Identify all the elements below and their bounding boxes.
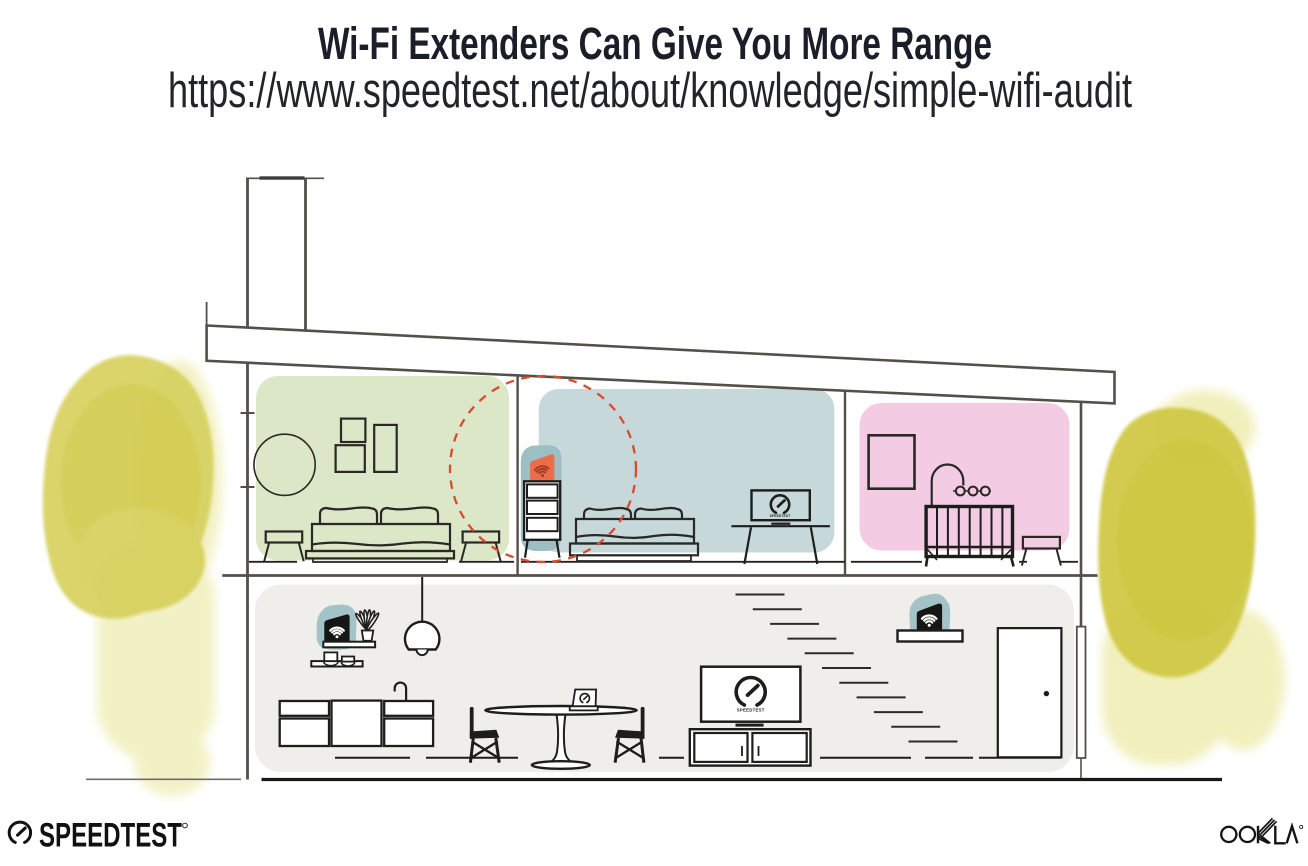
svg-text:SPEEDTEST: SPEEDTEST	[737, 708, 765, 713]
svg-text:Wi-Fi Extenders Can Give You M: Wi-Fi Extenders Can Give You More Range	[318, 18, 992, 69]
svg-text:https://www.speedtest.net/abou: https://www.speedtest.net/about/knowledg…	[168, 64, 1132, 118]
svg-text:SPEEDTEST: SPEEDTEST	[39, 817, 182, 855]
svg-text:SPEEDTEST: SPEEDTEST	[770, 514, 791, 518]
